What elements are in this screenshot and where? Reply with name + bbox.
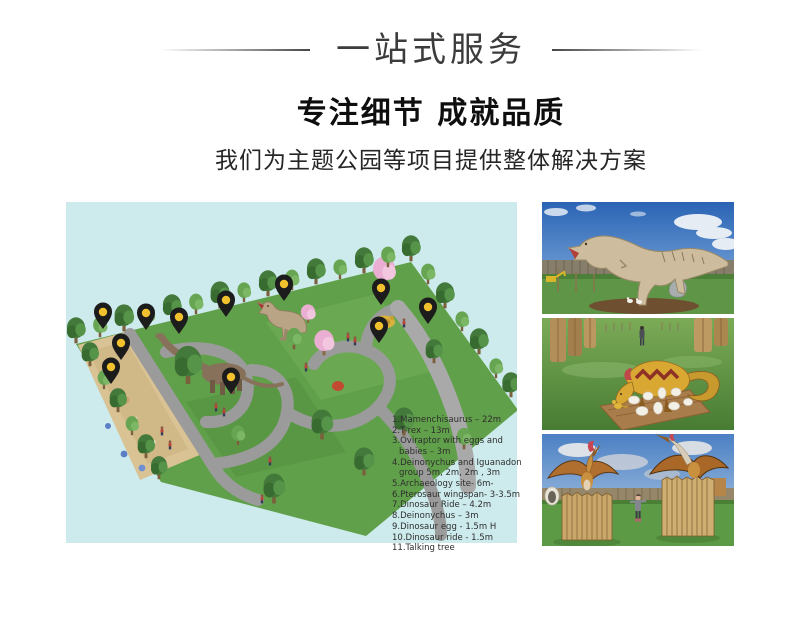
red-shrub <box>332 381 344 391</box>
photo-column <box>542 202 734 546</box>
map-legend: 1.Mamenchisaurus – 22m 2.T-rex – 13m 3.O… <box>392 415 523 554</box>
wood-tower-right <box>662 476 714 536</box>
legend-item: 10.Dinosaur ride - 1.5m <box>392 533 523 544</box>
legend-item: 8.Deinonychus – 3m <box>392 511 523 522</box>
photo-trex <box>542 202 734 314</box>
page-heading: 专注细节 成就品质 <box>62 88 800 132</box>
egg-chair <box>545 487 559 505</box>
legend-item: 7.Dinosaur Ride – 4.2m <box>392 500 523 511</box>
legend-item: 1.Mamenchisaurus – 22m <box>392 415 523 426</box>
legend-item: 11.Talking tree <box>392 543 523 554</box>
park-plan-image: 1.Mamenchisaurus – 22m 2.T-rex – 13m 3.O… <box>66 202 517 543</box>
page-subheading: 我们为主题公园等项目提供整体解决方案 <box>62 141 800 175</box>
legend-item: 6.Pterosaur wingspan- 3-3.5m <box>392 490 523 501</box>
page-header: 一站式服务 专注细节 成就品质 我们为主题公园等项目提供整体解决方案 <box>0 0 800 175</box>
title-rule-left <box>160 49 310 51</box>
photo-pterosaurs <box>542 434 734 546</box>
legend-item: 9.Dinosaur egg - 1.5m H <box>392 522 523 533</box>
gallery: 1.Mamenchisaurus – 22m 2.T-rex – 13m 3.O… <box>66 202 734 546</box>
section-title: 一站式服务 <box>336 30 526 71</box>
wood-tower-left <box>562 492 612 540</box>
legend-item: 4.Deinonychus and Iguanadon group 5m, 2m… <box>392 458 523 479</box>
section-title-row: 一站式服务 <box>62 30 800 71</box>
promo-page: 一站式服务 专注细节 成就品质 我们为主题公园等项目提供整体解决方案 <box>0 0 800 626</box>
legend-item: 5.Archaeology site- 6m- <box>392 479 523 490</box>
photo-dinosaur-eggs <box>542 318 734 430</box>
title-rule-right <box>552 49 702 51</box>
legend-item: 2.T-rex – 13m <box>392 426 523 437</box>
legend-item: 3.Oviraptor with eggs and babies – 3m <box>392 436 523 457</box>
